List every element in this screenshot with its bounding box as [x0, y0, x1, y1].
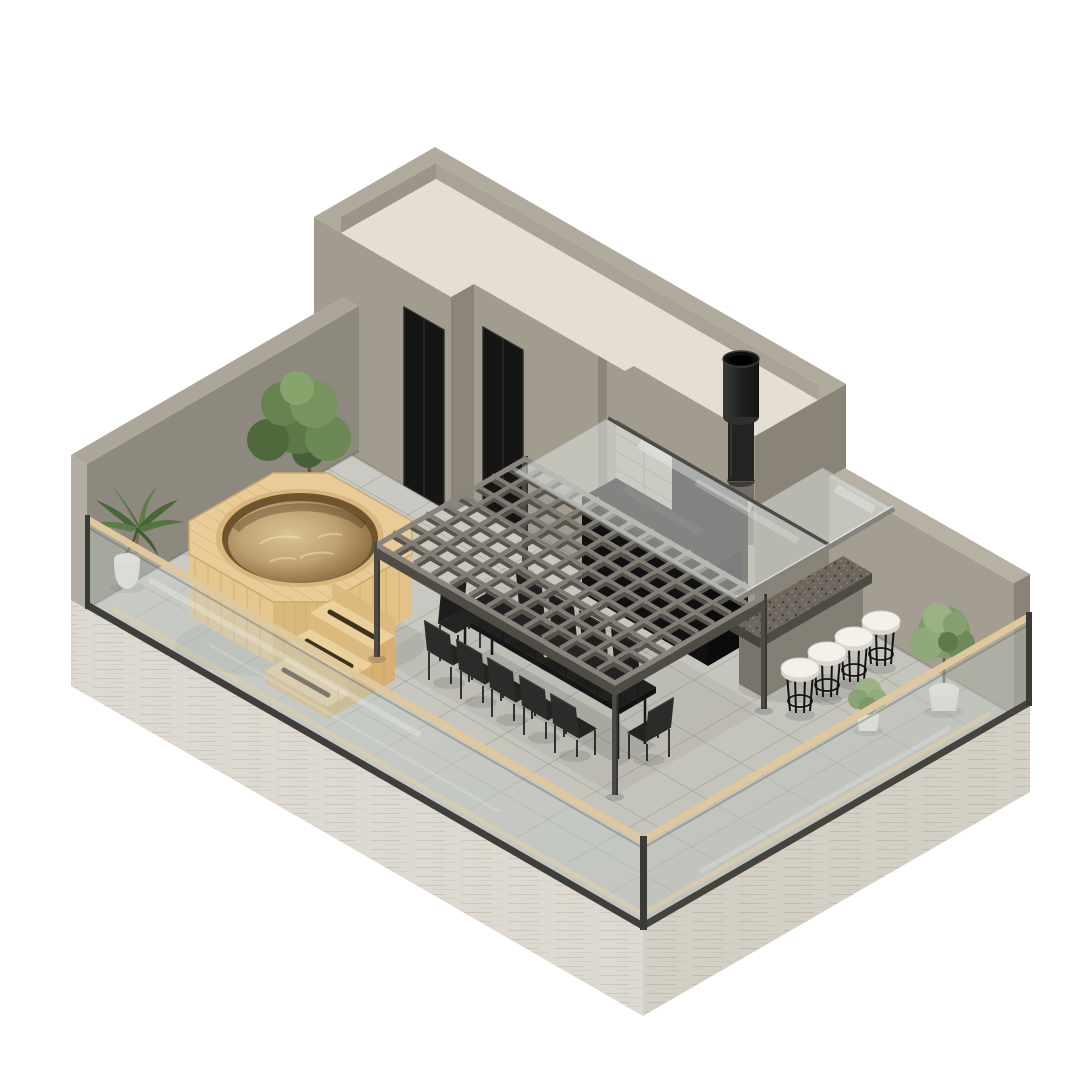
rail-post-left-end [85, 515, 90, 609]
chimney-flue [723, 351, 759, 487]
rail-post-right-end [1026, 612, 1032, 706]
chimney-top-hole [729, 355, 753, 365]
rooftop-terrace-render [0, 0, 1080, 1080]
rail-post-corner [640, 836, 647, 930]
left-wall-end [71, 455, 87, 609]
isometric-scene [0, 0, 1080, 1080]
penthouse-step-a [451, 284, 474, 513]
